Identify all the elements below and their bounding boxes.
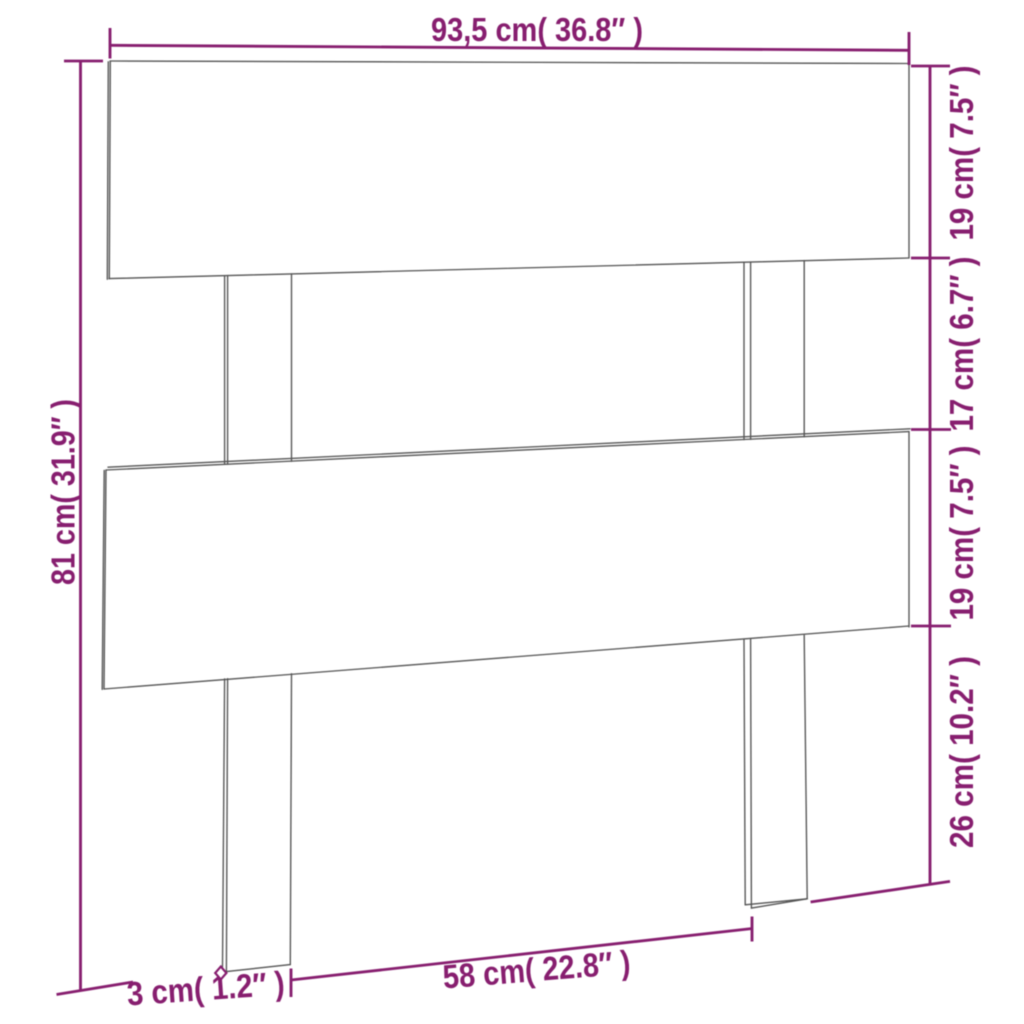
svg-text:17 cm( 6.7″ ): 17 cm( 6.7″ ) [944,257,981,432]
svg-text:26 cm( 10.2″ ): 26 cm( 10.2″ ) [944,656,981,848]
svg-text:81 cm( 31.9″ ): 81 cm( 31.9″ ) [46,399,83,585]
svg-text:93,5 cm( 36.8″ ): 93,5 cm( 36.8″ ) [431,12,643,49]
svg-text:19 cm( 7.5″ ): 19 cm( 7.5″ ) [944,446,981,621]
svg-text:19 cm( 7.5″ ): 19 cm( 7.5″ ) [944,66,981,241]
